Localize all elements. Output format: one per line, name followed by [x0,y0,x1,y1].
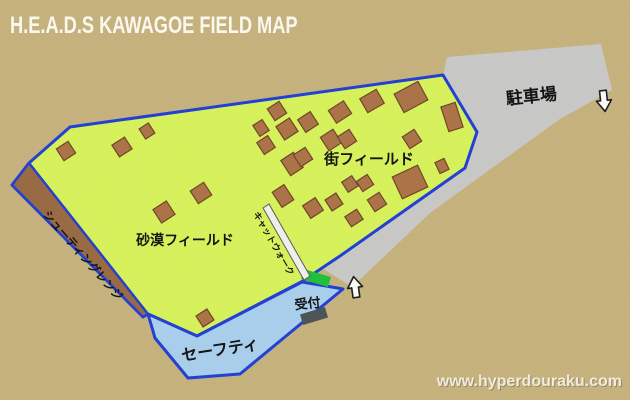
field-map-canvas: H.E.A.D.S KAWAGOE FIELD MAP 駐車場 街フィールド 砂… [0,0,630,400]
reception-label: 受付 [294,295,321,313]
desert-field-label: 砂漠フィールド [135,232,234,248]
watermark: www.hyperdouraku.com [436,373,622,390]
street-field-label: 街フィールド [323,150,414,168]
page-title: H.E.A.D.S KAWAGOE FIELD MAP [10,12,298,39]
grain-texture-overlay [0,0,630,400]
